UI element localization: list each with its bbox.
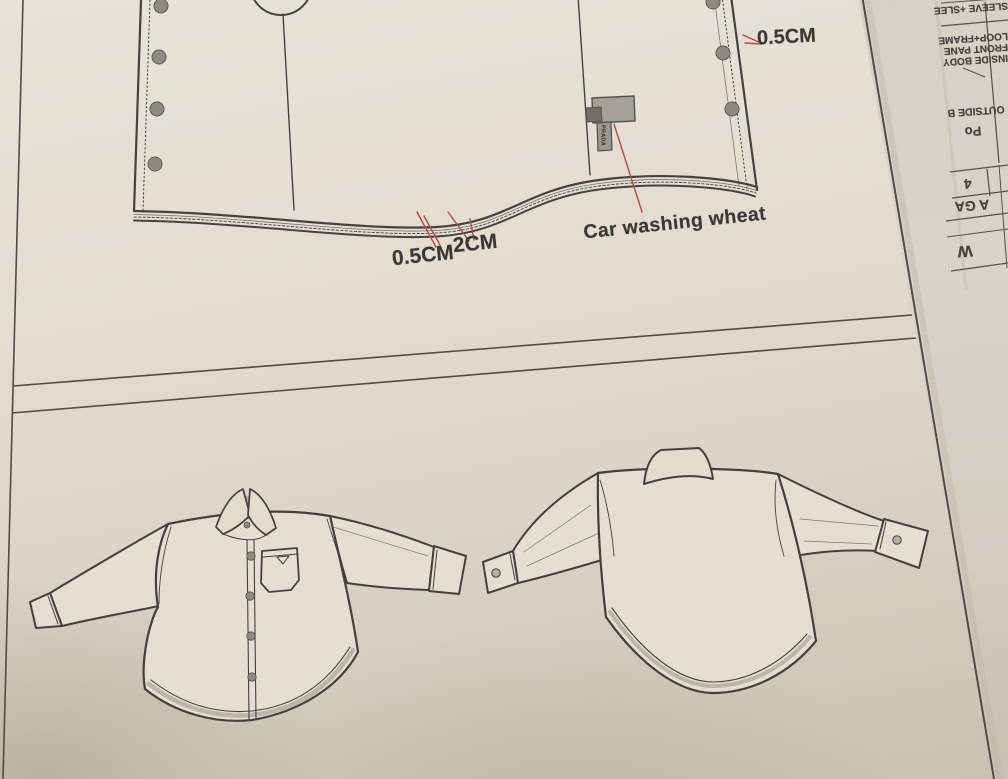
button <box>247 632 255 640</box>
side-cell-w: W <box>949 240 980 260</box>
back-shirt-drawing <box>483 448 928 693</box>
left-sleeve <box>50 524 168 626</box>
cuff-button <box>893 536 901 544</box>
techpack-photo: PRADA <box>0 0 1008 779</box>
cuff-button <box>492 569 500 577</box>
center-line-left <box>283 14 294 210</box>
button <box>148 157 162 171</box>
button <box>248 673 256 681</box>
button <box>244 522 250 528</box>
leader-care-label <box>614 124 642 212</box>
inside-body-drawing <box>134 0 757 237</box>
side-row-po: Po <box>958 123 989 140</box>
tag-brand-text: PRADA <box>600 125 606 146</box>
leader-hem-05 <box>417 212 436 247</box>
button <box>246 592 254 600</box>
measurement-label-front-edge: 0.5CM <box>756 24 816 50</box>
left-placket-edge <box>134 0 141 211</box>
button <box>154 0 168 13</box>
center-line-right <box>578 0 590 175</box>
button <box>716 46 730 60</box>
button <box>247 552 255 560</box>
button <box>725 102 739 116</box>
care-label-tag: PRADA <box>586 96 635 151</box>
body-outline <box>598 469 816 693</box>
tag-notch <box>586 107 602 122</box>
body-outline <box>144 512 358 721</box>
front-shirt-drawing <box>30 489 466 721</box>
neck-opening <box>250 0 312 15</box>
button <box>706 0 720 9</box>
left-placket-stitch <box>143 0 150 211</box>
button <box>150 102 164 116</box>
button <box>152 50 166 64</box>
techpack-line-art: PRADA <box>0 0 1008 779</box>
measurement-label-hem-width: 2CM <box>452 230 499 259</box>
right-cuff <box>875 519 928 568</box>
side-cell-4: 4 <box>955 175 980 193</box>
